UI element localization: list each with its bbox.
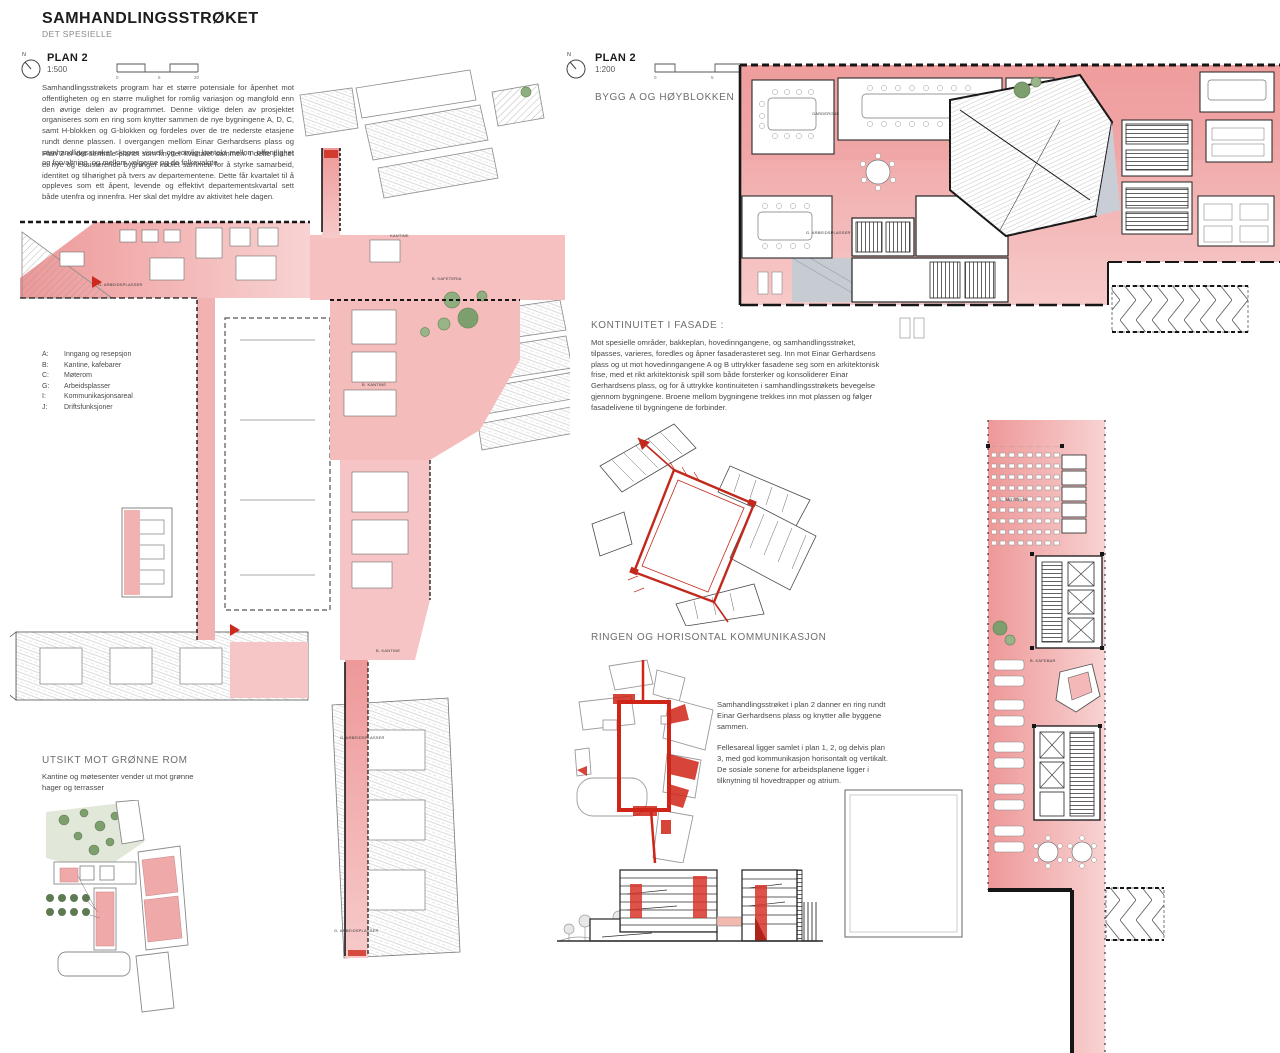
utsikt-diagram — [38, 800, 208, 1015]
scalebar-tick: 0 — [654, 75, 657, 80]
ringen-heading: RINGEN OG HORISONTAL KOMMUNIKASJON — [591, 632, 826, 643]
room-label: G. ARBEIDSPLASSER — [806, 230, 851, 235]
utsikt-body: Kantine og møtesenter vender ut mot grøn… — [42, 772, 202, 794]
room-label: B. KANTINE — [362, 382, 386, 387]
utsikt-heading: UTSIKT MOT GRØNNE ROM — [42, 755, 232, 766]
room-label: GARDEROBE — [812, 111, 839, 116]
room-label: G. ARBEIDSPLASSER — [340, 735, 385, 740]
presentation-board: SAMHANDLINGSSTRØKET DET SPESIELLE N PLAN… — [0, 0, 1280, 1053]
section-drawing — [557, 857, 823, 957]
north-compass-icon — [565, 58, 587, 80]
plan200-scale: 1:200 — [595, 65, 636, 74]
room-label: B. KAFETERIA — [432, 276, 462, 281]
ringen-paragraph-1: Samhandlingsstrøket i plan 2 danner en r… — [717, 700, 893, 732]
room-label: B. KAFEBAR — [1030, 658, 1056, 663]
fasade-section: KONTINUITET I FASADE : Mot spesielle omr… — [591, 320, 883, 413]
scalebar-tick: 10 — [741, 75, 746, 80]
utsikt-section: UTSIKT MOT GRØNNE ROM Kantine og møtesen… — [42, 755, 232, 794]
room-label: C. MØTEROM — [1000, 497, 1028, 502]
room-label: KANTINE — [390, 233, 409, 238]
plan200-building-label: BYGG A OG HØYBLOKKEN — [595, 92, 734, 103]
scalebar-tick: 5 — [711, 75, 714, 80]
fasade-body: Mot spesielle områder, bakkeplan, hovedi… — [591, 338, 883, 413]
room-label: G. ARBEIDSPLASSER — [98, 282, 143, 287]
room-label: G. ARBEIDSPLASSER — [334, 928, 379, 933]
plan200-name: PLAN 2 — [595, 52, 636, 64]
room-label: B. KANTINE — [376, 648, 400, 653]
ringen-paragraph-2: Fellesareal ligger samlet i plan 1, 2, o… — [717, 743, 893, 786]
fasade-heading: KONTINUITET I FASADE : — [591, 320, 883, 331]
ringen-text: Samhandlingsstrøket i plan 2 danner en r… — [717, 700, 893, 786]
axonometric-sketch — [578, 408, 830, 626]
ring-diagram — [573, 658, 718, 863]
plan200-scalebar — [653, 60, 748, 80]
